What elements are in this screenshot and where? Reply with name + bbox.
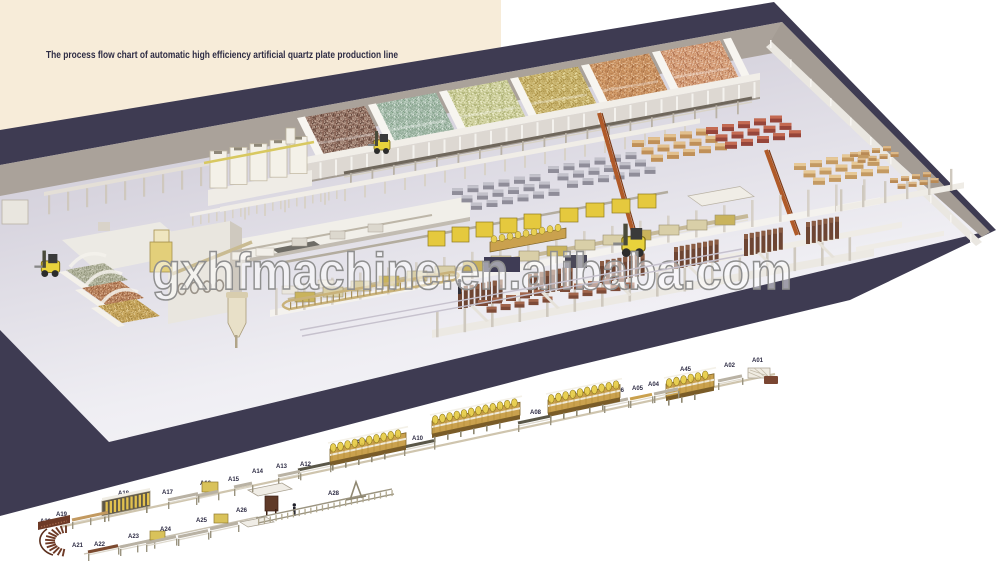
svg-text:A08: A08 xyxy=(530,410,542,416)
svg-text:A28: A28 xyxy=(328,491,340,497)
svg-text:A23: A23 xyxy=(128,534,140,540)
svg-text:A13: A13 xyxy=(276,464,288,470)
svg-text:A25: A25 xyxy=(196,518,208,524)
svg-text:A21: A21 xyxy=(72,543,84,549)
svg-text:A10: A10 xyxy=(412,436,424,442)
svg-text:A01: A01 xyxy=(752,358,764,364)
svg-text:A17: A17 xyxy=(162,490,174,496)
svg-text:The process flow chart of auto: The process flow chart of automatic high… xyxy=(46,50,398,61)
svg-text:A02: A02 xyxy=(724,363,736,369)
svg-text:A26: A26 xyxy=(236,508,248,514)
svg-text:A14: A14 xyxy=(252,469,264,475)
svg-text:gxhfmachine.en.alibaba.com: gxhfmachine.en.alibaba.com xyxy=(152,243,792,301)
svg-text:A04: A04 xyxy=(648,382,660,388)
svg-text:A15: A15 xyxy=(228,477,240,483)
svg-text:A24: A24 xyxy=(160,527,172,533)
svg-text:A22: A22 xyxy=(94,542,106,548)
svg-text:A05: A05 xyxy=(632,386,644,392)
